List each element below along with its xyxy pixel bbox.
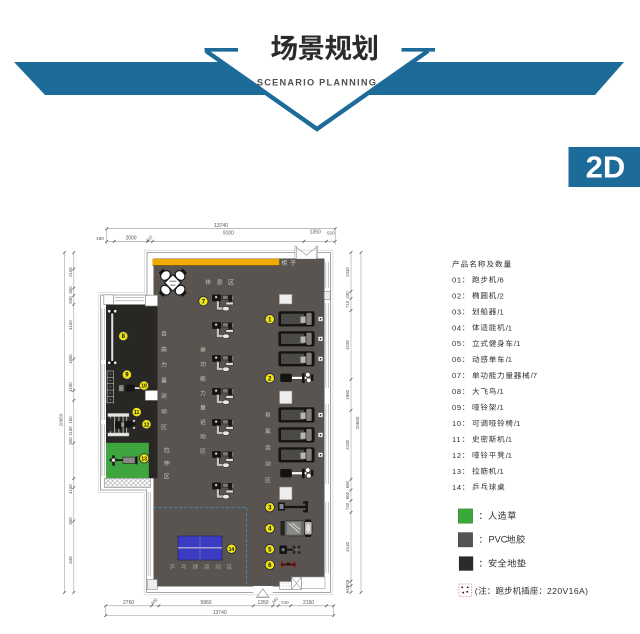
svg-text:20650: 20650 bbox=[58, 413, 63, 426]
svg-text:710: 710 bbox=[345, 300, 350, 308]
svg-text:12: 12 bbox=[144, 422, 150, 428]
svg-text:/1: /1 bbox=[514, 339, 520, 348]
svg-text:/7: /7 bbox=[531, 371, 537, 380]
svg-text:13740: 13740 bbox=[213, 610, 227, 616]
svg-text:830: 830 bbox=[68, 296, 73, 304]
svg-text:08: 08 bbox=[452, 387, 462, 396]
svg-text:13: 13 bbox=[141, 457, 147, 463]
svg-text:1850: 1850 bbox=[68, 354, 73, 364]
svg-text:430: 430 bbox=[345, 291, 350, 299]
svg-text:550: 550 bbox=[68, 517, 73, 525]
svg-text:9100: 9100 bbox=[223, 231, 234, 237]
svg-text:03: 03 bbox=[452, 307, 462, 316]
svg-text:600: 600 bbox=[345, 491, 350, 499]
svg-text:/2: /2 bbox=[497, 291, 503, 300]
svg-text:500: 500 bbox=[68, 437, 73, 445]
svg-text:4160: 4160 bbox=[68, 320, 73, 330]
svg-text:440: 440 bbox=[150, 597, 159, 606]
svg-text:/1: /1 bbox=[514, 419, 520, 428]
svg-text:13: 13 bbox=[452, 467, 462, 476]
svg-text:/1: /1 bbox=[497, 467, 503, 476]
svg-text:2D: 2D bbox=[586, 150, 626, 185]
svg-text:SCENARIO PLANNING: SCENARIO PLANNING bbox=[257, 78, 377, 88]
svg-text:12: 12 bbox=[452, 451, 462, 460]
svg-text:740: 740 bbox=[345, 502, 350, 510]
svg-text:1860: 1860 bbox=[345, 389, 350, 399]
svg-text:10: 10 bbox=[452, 419, 462, 428]
svg-text:2000: 2000 bbox=[125, 236, 136, 242]
svg-text:2340: 2340 bbox=[345, 267, 350, 277]
svg-text:/1: /1 bbox=[506, 435, 512, 444]
svg-text:500: 500 bbox=[68, 286, 73, 294]
svg-text:/1: /1 bbox=[506, 355, 512, 364]
svg-text:520: 520 bbox=[327, 231, 335, 236]
svg-text:1350: 1350 bbox=[310, 230, 321, 236]
svg-text:/1: /1 bbox=[497, 387, 503, 396]
svg-text:14: 14 bbox=[452, 483, 462, 492]
svg-text:2150: 2150 bbox=[303, 600, 314, 606]
svg-text:/1: /1 bbox=[497, 307, 503, 316]
svg-text:1150: 1150 bbox=[68, 426, 73, 436]
svg-text:5960: 5960 bbox=[200, 600, 211, 606]
svg-text:PVC: PVC bbox=[489, 535, 508, 545]
svg-text:645: 645 bbox=[345, 585, 350, 593]
svg-text:02: 02 bbox=[452, 291, 462, 300]
svg-text:11: 11 bbox=[452, 435, 461, 444]
svg-text:07: 07 bbox=[452, 371, 462, 380]
svg-text:09: 09 bbox=[452, 403, 462, 412]
svg-text:4150: 4150 bbox=[68, 382, 73, 392]
svg-text:4150: 4150 bbox=[345, 339, 350, 349]
svg-text:05: 05 bbox=[452, 339, 462, 348]
svg-text:180: 180 bbox=[68, 416, 73, 424]
svg-text:2160: 2160 bbox=[68, 267, 73, 277]
svg-text:1350: 1350 bbox=[257, 600, 268, 606]
svg-text:(: ( bbox=[475, 586, 478, 596]
svg-text:10: 10 bbox=[141, 384, 147, 390]
svg-text:340: 340 bbox=[271, 596, 280, 605]
svg-text:13740: 13740 bbox=[214, 223, 228, 229]
svg-text:4140: 4140 bbox=[345, 541, 350, 551]
svg-text:645: 645 bbox=[68, 556, 73, 564]
svg-text:650: 650 bbox=[345, 480, 350, 488]
svg-text:/1: /1 bbox=[506, 323, 512, 332]
svg-text:460: 460 bbox=[96, 236, 104, 241]
svg-text:2760: 2760 bbox=[123, 600, 134, 606]
svg-text:14: 14 bbox=[229, 547, 235, 553]
svg-text:01: 01 bbox=[452, 275, 462, 284]
svg-text:/1: /1 bbox=[506, 451, 512, 460]
svg-text:04: 04 bbox=[452, 323, 462, 332]
svg-text:220V16A): 220V16A) bbox=[547, 586, 588, 596]
svg-text:4150: 4150 bbox=[345, 439, 350, 449]
svg-text:4150: 4150 bbox=[68, 484, 73, 494]
svg-text:20650: 20650 bbox=[355, 416, 360, 429]
svg-text:740: 740 bbox=[281, 600, 289, 605]
svg-text:/1: /1 bbox=[497, 403, 503, 412]
svg-text:/6: /6 bbox=[497, 275, 503, 284]
svg-text:06: 06 bbox=[452, 355, 462, 364]
svg-text:11: 11 bbox=[134, 410, 140, 416]
